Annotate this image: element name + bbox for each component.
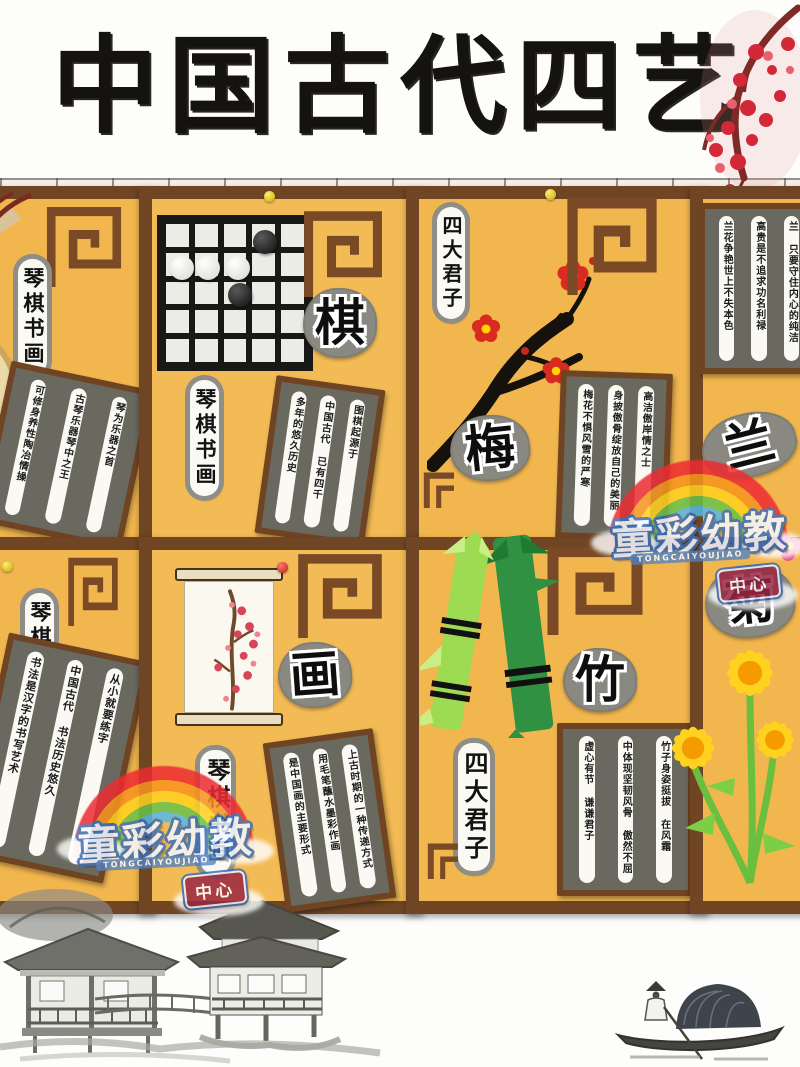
pushpin — [277, 562, 288, 573]
plaque-strip: 虚心有节 谦谦君子 — [579, 736, 595, 883]
scroll-roller — [175, 568, 283, 581]
panel-shu: 琴棋书画 从小就要练字 中国古代 书法历史悠久 书法是汉字的书写艺术 — [0, 537, 157, 914]
plaque-strip: 古琴乐器琴中之王 — [44, 387, 88, 525]
panel-qi: 棋 琴棋书画 围棋起源于 中国古代 已有四千 多年的悠久历史 — [139, 186, 426, 557]
lattice-ornament-icon — [565, 195, 659, 295]
panel-qin: 琴棋书画 琴为乐器之首 古琴乐器琴中之王 可修身养性陶冶情操 — [0, 186, 160, 557]
plaque-strip: 围棋起源于 — [332, 399, 366, 533]
medallion-qi: 棋 — [303, 288, 377, 358]
boat-icon — [618, 981, 782, 1059]
bamboo-icon — [420, 528, 570, 738]
black-go-stone — [228, 283, 252, 307]
plaque-strip: 高贵是不追求功名利禄 — [751, 216, 767, 361]
plaque-strip: 中体现坚韧风骨 傲然不屈 — [618, 736, 634, 883]
medallion-lan: 兰 — [695, 402, 800, 487]
fan-icon — [0, 189, 37, 241]
pushpin — [264, 191, 275, 202]
pushpin — [545, 189, 556, 200]
plaque-strip: 高洁傲岸情之士 — [634, 386, 654, 528]
medallion-hua: 画 — [276, 639, 354, 710]
plaque-hua: 上古时期的一种传递方式 用毛笔蘸水墨彩作画 是中国画的主要形式 — [263, 728, 397, 913]
plaque-strip: 琴为乐器之首 — [84, 395, 128, 533]
lattice-ornament-icon — [296, 552, 384, 638]
poster: 中国古代四艺 — [0, 0, 800, 1067]
label-four-arts: 琴棋书画 — [18, 259, 47, 375]
corner-bracket-icon — [424, 843, 458, 879]
plum-blossom-corner-icon — [620, 0, 800, 210]
lattice-ornament-icon — [302, 209, 384, 297]
plaque-strip: 是中国画的主要形式 — [282, 752, 318, 898]
plaque-qi: 围棋起源于 中国古代 已有四千 多年的悠久历史 — [254, 375, 385, 548]
corner-bracket-icon — [420, 472, 454, 508]
pavilion-icon — [188, 901, 345, 1048]
pushpin — [2, 561, 13, 572]
white-go-stone — [170, 256, 194, 280]
scroll-roller — [175, 713, 283, 726]
white-go-stone — [196, 256, 220, 280]
plaque-strip: 可修身养性陶冶情操 — [4, 378, 48, 516]
plaque-strip: 兰花争艳世上不失本色 — [719, 216, 735, 361]
panel-ju: 菊 — [690, 537, 800, 914]
plaque-lan: 兰 只要守住内心的纯洁 高贵是不追求功名利禄 兰花争艳世上不失本色 — [699, 203, 800, 374]
scroll-painting — [184, 568, 274, 726]
black-go-stone — [253, 230, 277, 254]
lattice-ornament-icon — [67, 556, 119, 626]
panel-mei: 四大君子 — [406, 186, 709, 558]
sunflower-icon — [655, 628, 800, 893]
panel-lan: 兰 只要守住内心的纯洁 高贵是不追求功名利禄 兰花争艳世上不失本色 兰 — [690, 186, 800, 558]
plaque-mei: 高洁傲岸情之士 身披傲骨绽放自己的美丽 梅花不惧风雪的严寒 — [555, 370, 673, 542]
pink-flower-icon — [776, 533, 800, 563]
ink-wash-painting — [0, 887, 800, 1067]
white-go-stone — [226, 256, 250, 280]
plaque-shu: 从小就要练字 中国古代 书法历史悠久 书法是汉字的书写艺术 — [0, 632, 150, 883]
plaque-strip: 上古时期的一种传递方式 — [341, 744, 377, 890]
go-board-icon — [157, 215, 313, 371]
scroll-paper — [184, 581, 274, 713]
plaque-strip: 兰 只要守住内心的纯洁 — [784, 216, 800, 361]
label-four-arts: 琴棋书画 — [200, 750, 231, 874]
plaque-strip: 身披傲骨绽放自己的美丽 — [604, 385, 624, 527]
lattice-ornament-icon — [45, 205, 123, 287]
pavilion-icon — [5, 929, 178, 1053]
label-four-arts: 琴棋书画 — [190, 380, 219, 496]
plaque-strip: 用毛笔蘸水墨彩作画 — [312, 748, 348, 894]
label-four-gentlemen: 四大君子 — [458, 743, 490, 871]
medallion-zhu: 竹 — [563, 648, 637, 712]
plaque-strip: 中国古代 已有四千 — [303, 395, 337, 529]
panel-hua: 画 琴棋书画 上古时期的一种传递方式 用毛笔蘸水墨彩作画 是中国画的主要形式 — [139, 537, 424, 914]
plaque-qin: 琴为乐器之首 古琴乐器琴中之王 可修身养性陶冶情操 — [0, 361, 154, 552]
plaque-strip: 多年的悠久历史 — [274, 390, 308, 524]
plaque-strip: 梅花不惧风雪的严寒 — [574, 384, 594, 526]
